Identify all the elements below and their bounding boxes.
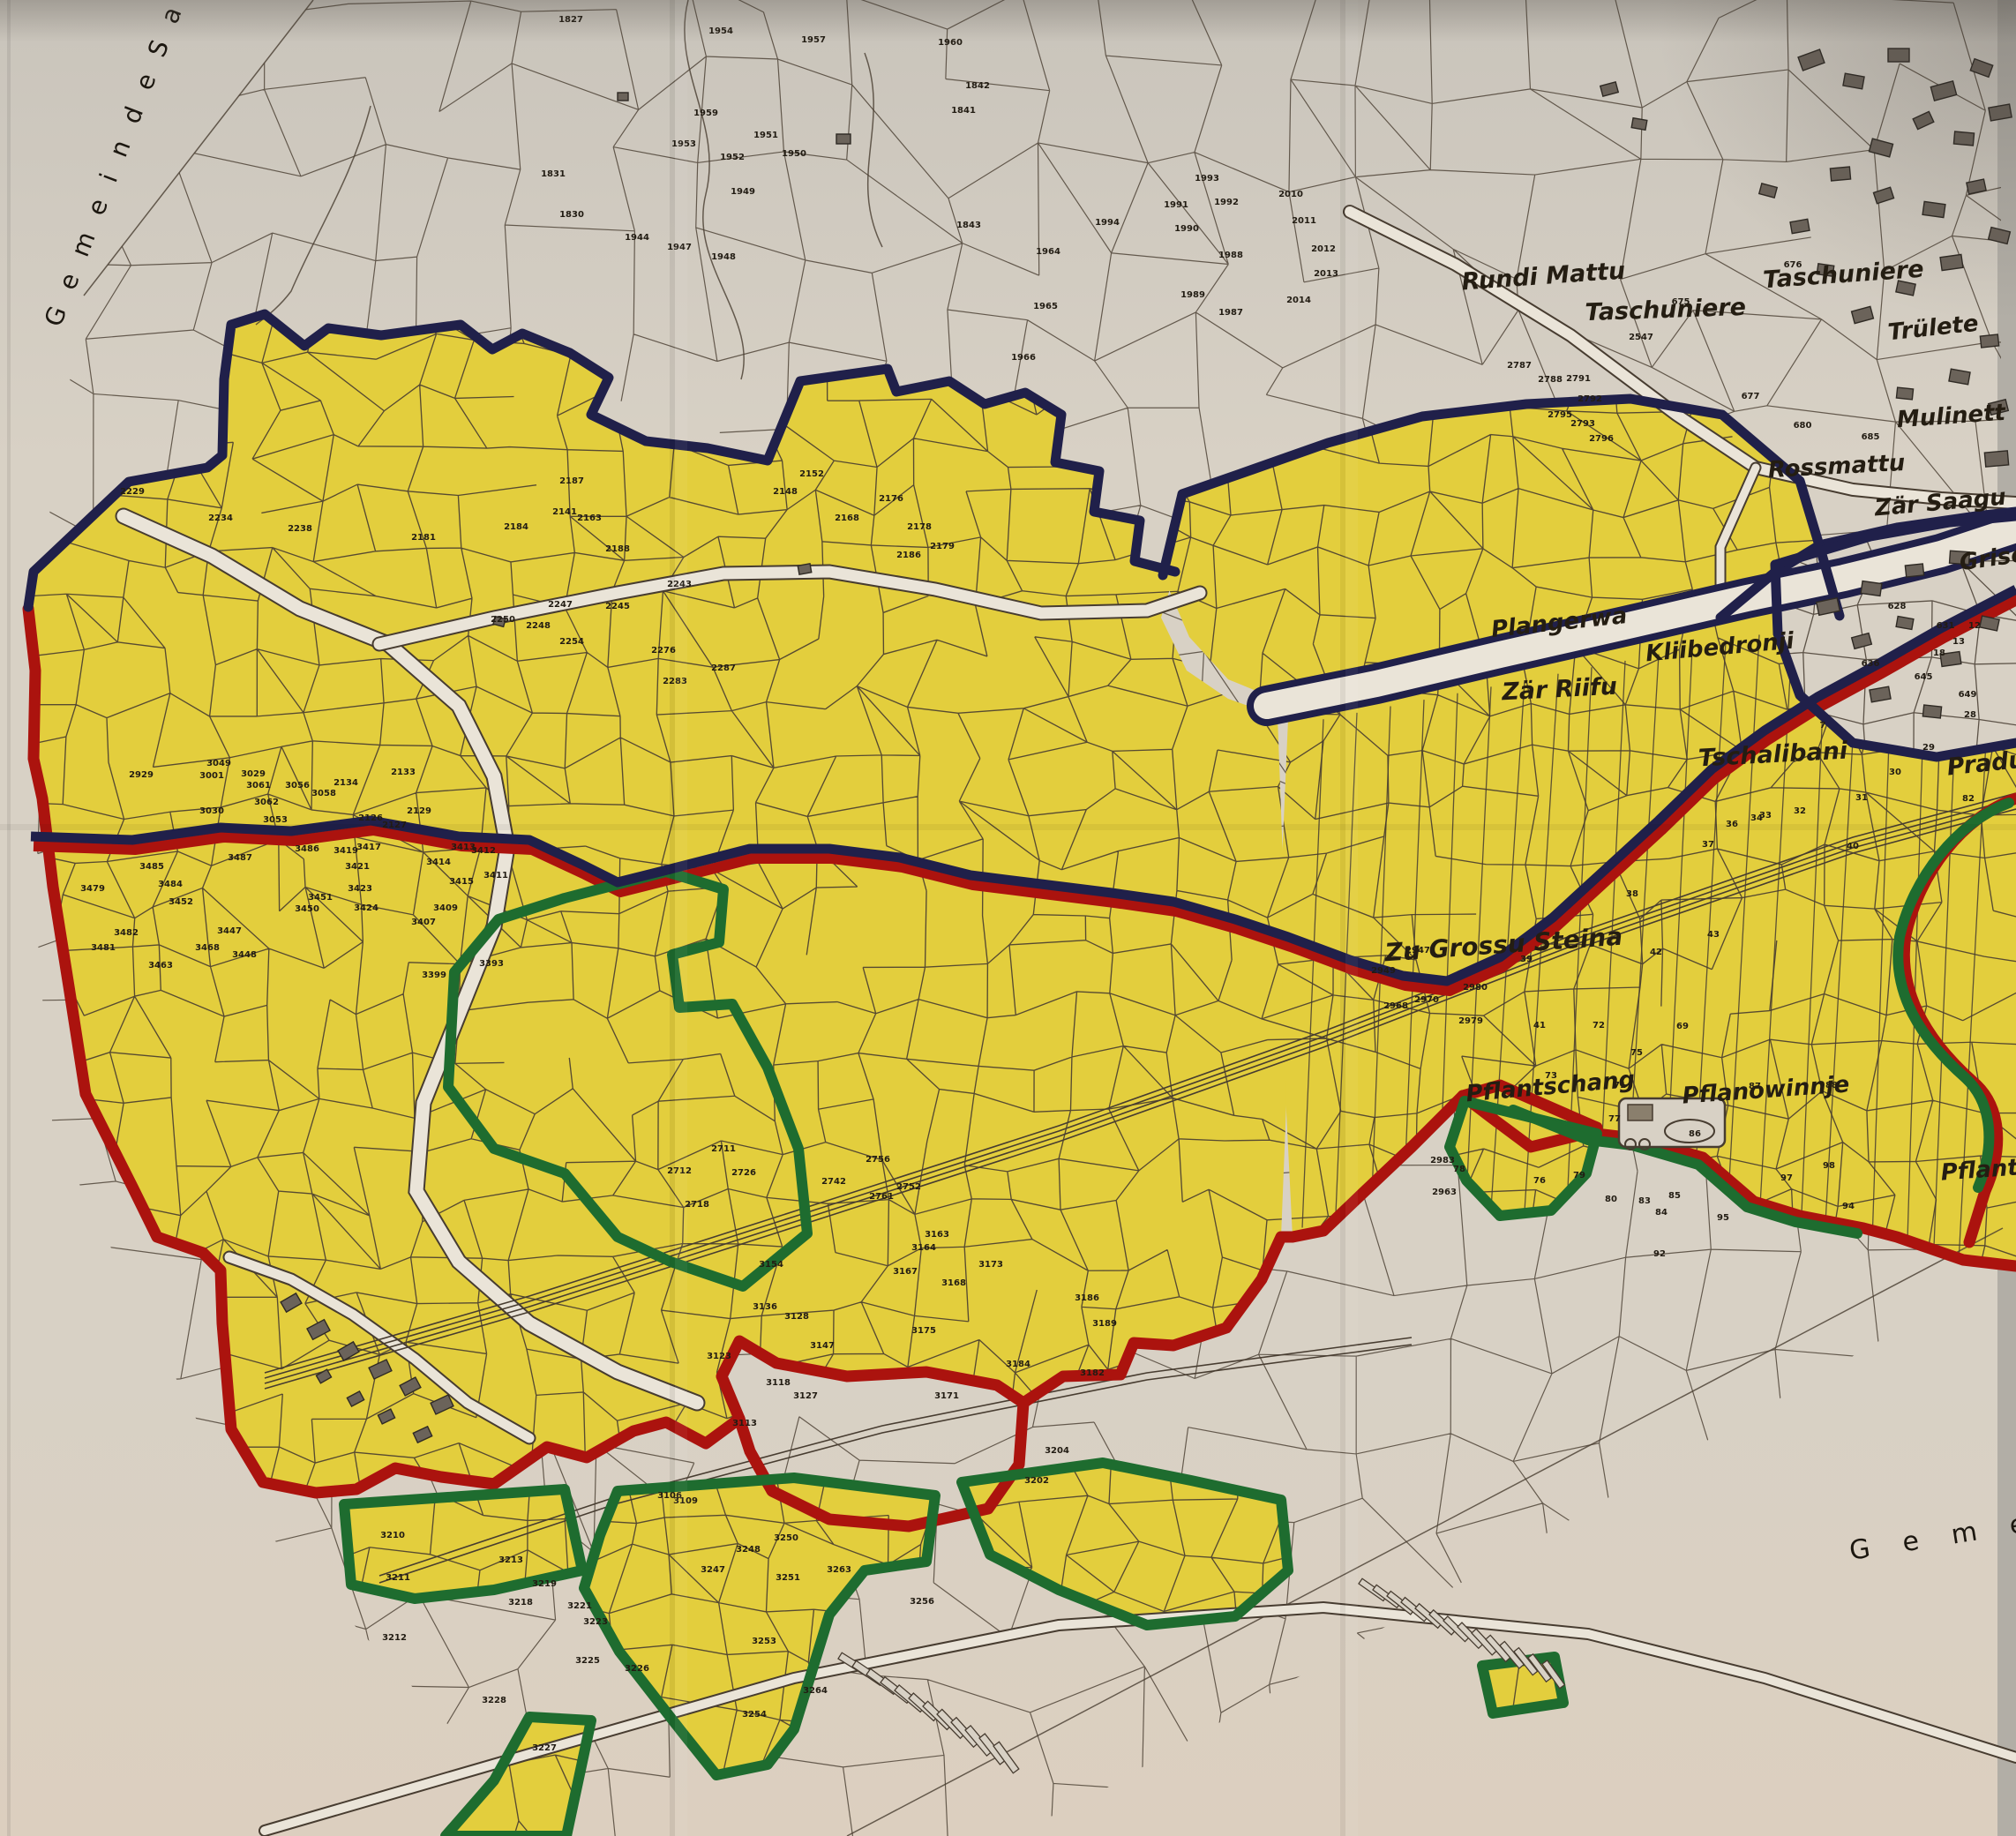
parcel-number: 3254 <box>742 1710 767 1720</box>
parcel-number: 2126 <box>358 813 383 823</box>
parcel-number: 2929 <box>129 770 154 780</box>
parcel-number: 3451 <box>308 893 333 903</box>
parcel-number: 2188 <box>605 544 630 554</box>
parcel-number: 85 <box>1668 1191 1681 1201</box>
parcel-number: 3136 <box>753 1302 777 1312</box>
parcel-number: 78 <box>1453 1165 1465 1174</box>
parcel-number: 3484 <box>158 880 183 889</box>
parcel-number: 2186 <box>896 551 921 560</box>
cadastral-map-svg: 1827195419571960195919511953195219501949… <box>0 0 2016 1836</box>
parcel-number: 3212 <box>382 1633 407 1643</box>
parcel-number: 3450 <box>295 904 319 914</box>
parcel-number: 3186 <box>1075 1293 1099 1303</box>
parcel-number: 2163 <box>577 513 602 523</box>
parcel-number: 3168 <box>941 1278 966 1288</box>
parcel-number: 3226 <box>625 1664 649 1674</box>
parcel-number: 3415 <box>449 877 474 887</box>
parcel-number: 636 <box>1862 659 1880 669</box>
parcel-number: 3118 <box>766 1378 791 1388</box>
parcel-number: 86 <box>1689 1129 1701 1139</box>
parcel-number: 3247 <box>701 1565 725 1575</box>
parcel-number: 76 <box>1533 1176 1546 1186</box>
parcel-number: 3421 <box>345 862 370 872</box>
parcel-number: 3053 <box>263 815 288 825</box>
parcel-number: 3256 <box>910 1597 934 1607</box>
building-footprint <box>798 564 812 574</box>
parcel-number: 82 <box>1962 794 1975 804</box>
parcel-number: 2711 <box>711 1144 736 1154</box>
parcel-number: 3411 <box>483 871 508 881</box>
parcel-number: 3228 <box>482 1696 506 1705</box>
parcel-number: 3029 <box>241 769 266 779</box>
parcel-number: 3204 <box>1045 1446 1069 1456</box>
parcel-number: 2176 <box>879 494 903 504</box>
parcel-number: 645 <box>1915 672 1933 682</box>
parcel-number: 2968 <box>1383 1001 1408 1011</box>
parcel-number: 2234 <box>208 513 233 523</box>
parcel-number: 3049 <box>206 759 231 768</box>
parcel-number: 3123 <box>707 1352 731 1361</box>
parcel-number: 3171 <box>934 1391 959 1401</box>
parcel-number: 28 <box>1964 710 1976 720</box>
parcel-number: 3412 <box>471 846 496 856</box>
parcel-number: 3218 <box>508 1598 533 1607</box>
building-footprint <box>1870 686 1891 702</box>
parcel-number: 3250 <box>774 1533 798 1543</box>
parcel-number: 1966 <box>1011 353 1036 363</box>
parcel-number: 2179 <box>930 542 955 551</box>
parcel-number: 3113 <box>732 1419 757 1428</box>
parcel-number: 2983 <box>1430 1156 1455 1165</box>
parcel-number: 3463 <box>148 961 173 970</box>
parcel-number: 2134 <box>334 778 358 788</box>
parcel-number: 2761 <box>869 1192 894 1202</box>
parcel-number: 3485 <box>139 862 164 872</box>
parcel-number: 3253 <box>752 1637 776 1646</box>
parcel-number: 3167 <box>893 1267 918 1277</box>
parcel-number: 3211 <box>386 1573 410 1583</box>
parcel-number: 2756 <box>866 1155 890 1165</box>
parcel-number: 3001 <box>199 771 224 781</box>
parcel-number: 75 <box>1630 1048 1643 1058</box>
parcel-number: 95 <box>1717 1213 1729 1223</box>
parcel-number: 13 <box>1952 637 1965 647</box>
parcel-number: 3147 <box>810 1341 835 1351</box>
photo-vignette-corner <box>1323 0 2016 618</box>
parcel-number: 97 <box>1780 1173 1793 1183</box>
parcel-number: 3056 <box>285 781 310 791</box>
parcel-number: 3175 <box>911 1326 936 1336</box>
parcel-number: 2250 <box>491 615 515 625</box>
parcel-number: 3409 <box>433 903 458 913</box>
building-footprint <box>1896 617 1914 630</box>
parcel-number: 3127 <box>793 1391 818 1401</box>
parcel-number: 2949 <box>1371 966 1396 976</box>
parcel-number: 29 <box>1922 743 1935 753</box>
parcel-number: 631 <box>1937 621 1955 631</box>
parcel-number: 3248 <box>736 1545 761 1555</box>
parcel-number: 3452 <box>169 897 193 907</box>
parcel-number: 3163 <box>925 1230 949 1240</box>
parcel-number: 3202 <box>1024 1476 1049 1486</box>
parcel-number: 2287 <box>711 663 736 673</box>
parcel-number: 2742 <box>821 1177 846 1187</box>
parcel-number: 3448 <box>232 950 257 960</box>
parcel-number: 3058 <box>311 789 336 798</box>
place-name-label: Pflants <box>1940 1153 2016 1186</box>
parcel-number: 38 <box>1626 889 1638 899</box>
parcel-number: 3189 <box>1092 1319 1117 1329</box>
parcel-number: 2980 <box>1463 983 1488 993</box>
parcel-number: 3486 <box>295 844 319 854</box>
parcel-number: 2752 <box>896 1182 921 1192</box>
parcel-number: 3219 <box>532 1579 557 1589</box>
parcel-number: 40 <box>1847 842 1859 851</box>
parcel-number: 43 <box>1707 930 1720 940</box>
parcel-number: 3414 <box>426 858 451 867</box>
parcel-number: 3423 <box>348 884 372 894</box>
parcel-number: 3213 <box>498 1555 523 1565</box>
parcel-number: 32 <box>1794 806 1806 816</box>
parcel-number: 3264 <box>803 1686 828 1696</box>
parcel-number: 3128 <box>784 1312 809 1322</box>
facility-block <box>1628 1105 1653 1120</box>
parcel-number: 2178 <box>907 522 932 532</box>
map-photo: 1827195419571960195919511953195219501949… <box>0 0 2016 1836</box>
parcel-number: 2133 <box>391 768 416 777</box>
parcel-number: 79 <box>1573 1171 1585 1180</box>
parcel-number: 2979 <box>1458 1016 1483 1026</box>
parcel-number: 80 <box>1605 1195 1617 1204</box>
parcel-number: 2963 <box>1432 1188 1457 1197</box>
parcel-number: 649 <box>1959 690 1977 700</box>
parcel-number: 3182 <box>1080 1368 1105 1378</box>
parcel-number: 37 <box>1702 840 1714 850</box>
parcel-number: 3393 <box>479 959 504 969</box>
parcel-number: 2718 <box>685 1200 709 1210</box>
parcel-number: 92 <box>1653 1249 1666 1259</box>
parcel-number: 2184 <box>504 522 528 532</box>
parcel-number: 77 <box>1608 1114 1621 1124</box>
parcel-number: 3419 <box>334 846 358 856</box>
parcel-number: 3407 <box>411 918 436 927</box>
parcel-number: 98 <box>1823 1161 1835 1171</box>
parcel-number: 2129 <box>407 806 431 816</box>
parcel-number: 3184 <box>1006 1360 1030 1369</box>
parcel-number: 3479 <box>80 884 105 894</box>
parcel-number: 3210 <box>380 1531 405 1540</box>
parcel-number: 3227 <box>532 1743 557 1753</box>
parcel-number: 2148 <box>773 487 798 497</box>
parcel-number: 2181 <box>411 533 436 543</box>
parcel-number: 2187 <box>559 476 584 486</box>
parcel-number: 69 <box>1676 1022 1689 1031</box>
parcel-number: 2970 <box>1414 995 1439 1005</box>
parcel-number: 3263 <box>827 1565 851 1575</box>
parcel-number: 2168 <box>835 513 859 523</box>
parcel-number: 83 <box>1638 1196 1651 1206</box>
parcel-number: 72 <box>1593 1021 1605 1030</box>
parcel-number: 2248 <box>526 621 551 631</box>
parcel-number: 3221 <box>567 1601 592 1611</box>
parcel-number: 3424 <box>354 903 378 913</box>
parcel-number: 31 <box>1855 793 1868 803</box>
parcel-number: 42 <box>1650 948 1662 957</box>
parcel-number: 3447 <box>217 926 242 936</box>
horizontal-fold <box>0 824 2016 830</box>
parcel-number: 2141 <box>552 507 577 517</box>
building-footprint <box>1922 705 1941 718</box>
parcel-number: 3062 <box>254 798 279 807</box>
parcel-number: 2254 <box>559 637 584 647</box>
parcel-number: 2229 <box>120 487 145 497</box>
parcel-number: 18 <box>1933 648 1945 658</box>
parcel-number: 34 <box>1750 813 1763 823</box>
parcel-number: 2152 <box>799 469 824 479</box>
parcel-number: 2247 <box>548 600 573 610</box>
parcel-number: 3173 <box>978 1260 1003 1270</box>
parcel-number: 12 <box>1968 621 1981 631</box>
parcel-number: 3154 <box>759 1260 783 1270</box>
parcel-number: 41 <box>1533 1021 1546 1030</box>
parcel-number: 3481 <box>91 943 116 953</box>
parcel-number: 3030 <box>199 806 224 816</box>
parcel-number: 84 <box>1655 1208 1668 1218</box>
parcel-number: 3061 <box>246 781 271 791</box>
parcel-number: 2238 <box>288 524 312 534</box>
parcel-number: 3399 <box>422 970 446 980</box>
parcel-number: 3164 <box>911 1243 936 1253</box>
parcel-number: 7 <box>1820 721 1826 731</box>
parcel-number: 3225 <box>575 1656 600 1666</box>
parcel-number: 3251 <box>776 1573 800 1583</box>
parcel-number: 30 <box>1889 768 1901 777</box>
parcel-number: 2726 <box>731 1168 756 1178</box>
parcel-number: 3417 <box>356 843 381 852</box>
parcel-number: 2245 <box>605 602 630 611</box>
parcel-number: 3468 <box>195 943 220 953</box>
parcel-number: 3223 <box>583 1617 608 1627</box>
parcel-number: 3482 <box>114 928 139 938</box>
parcel-number: 94 <box>1842 1202 1855 1211</box>
parcel-number: 3487 <box>228 853 252 863</box>
